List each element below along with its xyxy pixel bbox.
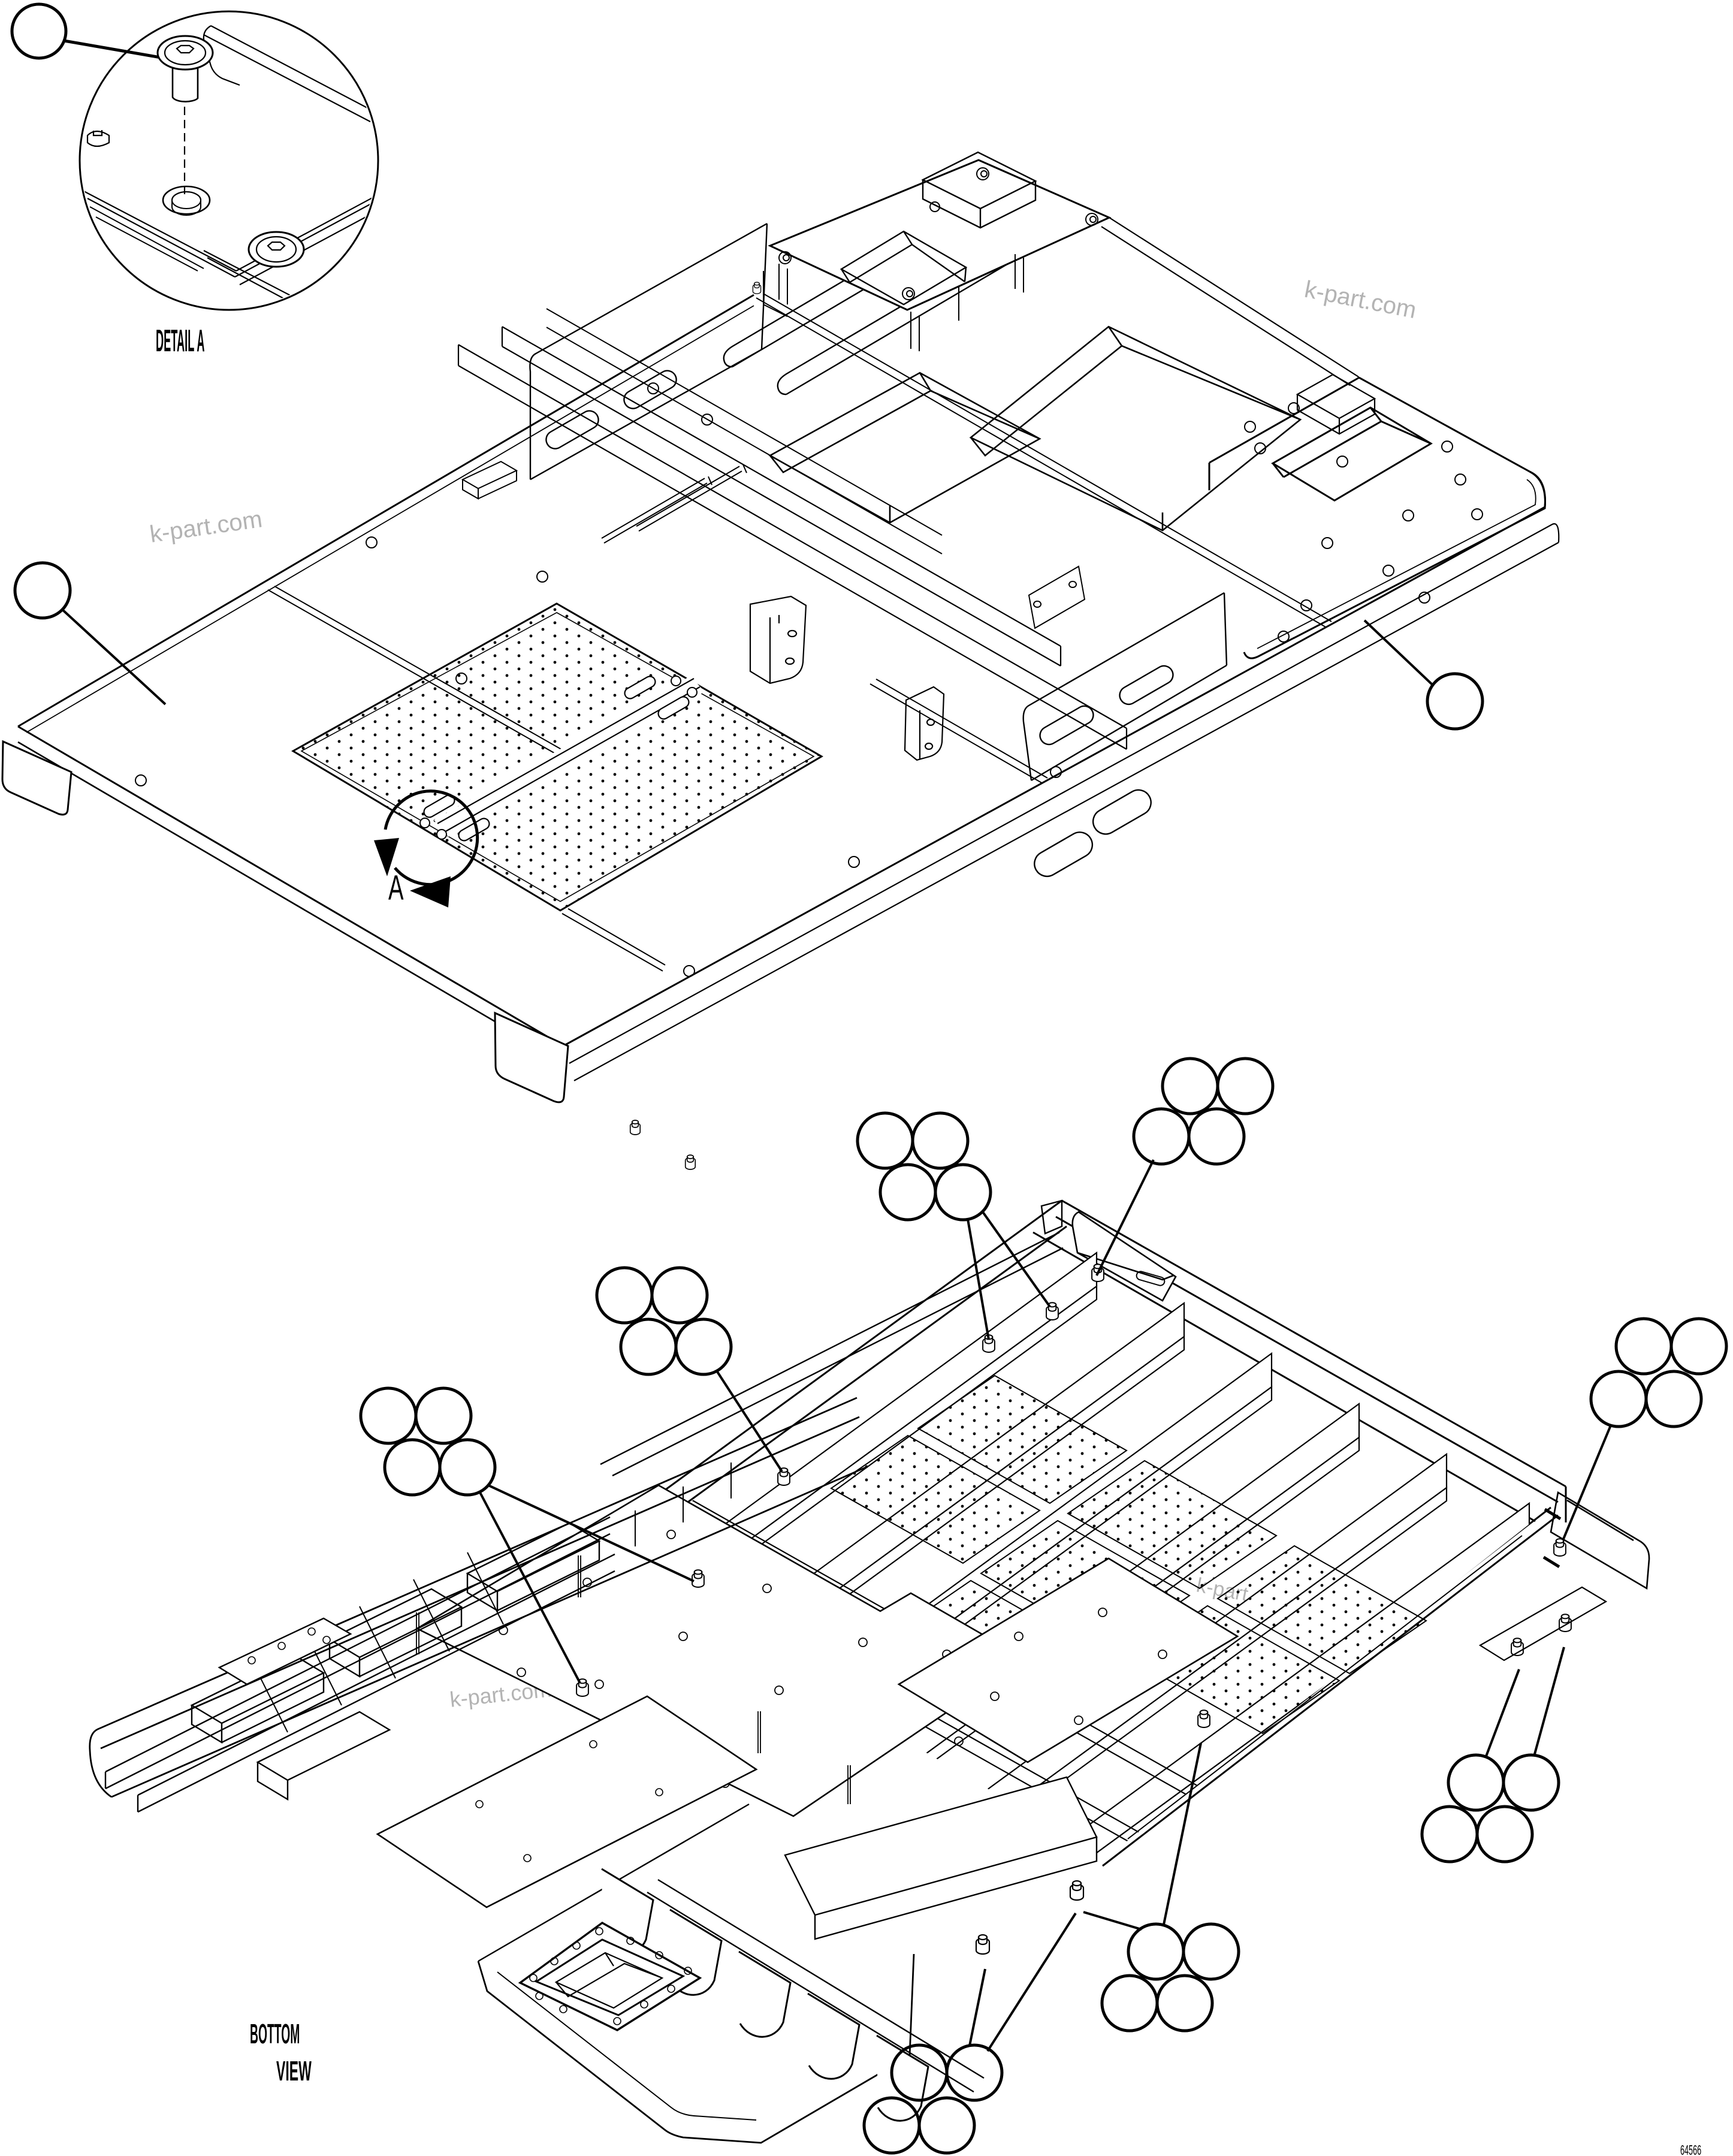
svg-text:64566: 64566 [1680,2142,1701,2156]
svg-text:BOTTOM: BOTTOM [250,2019,300,2050]
svg-text:VIEW: VIEW [276,2055,312,2086]
svg-text:DETAIL A: DETAIL A [156,324,205,358]
svg-text:A: A [388,869,404,907]
